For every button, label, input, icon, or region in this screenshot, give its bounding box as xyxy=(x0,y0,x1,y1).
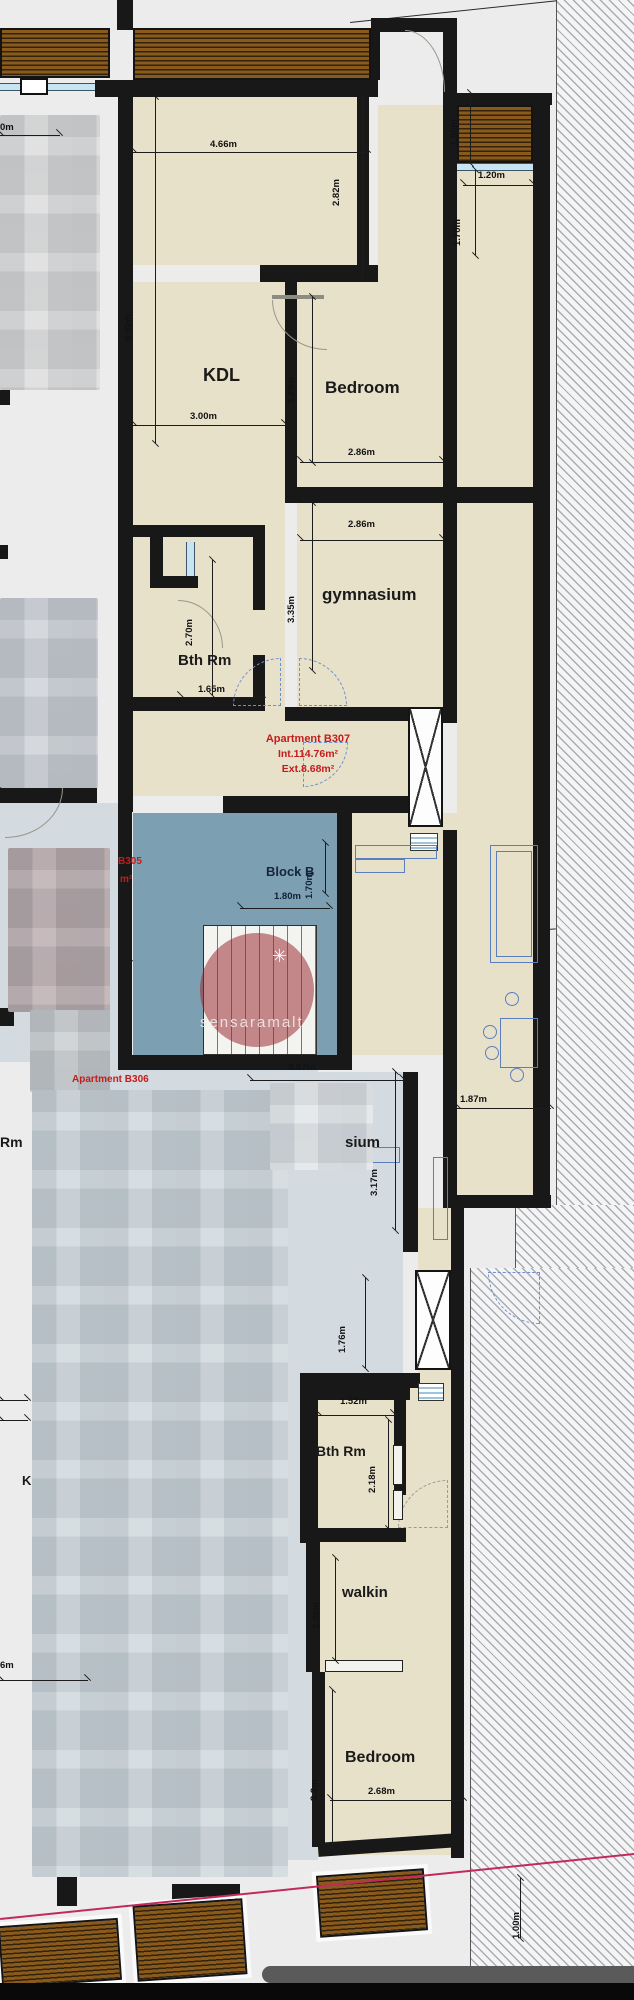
watermark-text: sensaramalta xyxy=(196,1014,318,1031)
neighbour-hatch-upper xyxy=(556,0,634,1268)
dim-line xyxy=(133,152,368,153)
dim-label: 1.00m xyxy=(511,1912,522,1939)
counter xyxy=(355,859,405,873)
dim-line xyxy=(240,908,330,909)
room-label-fragment-rm: Rm xyxy=(0,1134,23,1150)
dim-line xyxy=(335,1558,336,1660)
wall xyxy=(118,95,133,812)
wall xyxy=(443,830,457,1208)
balcony-deck-top-main xyxy=(133,28,371,80)
wall xyxy=(443,105,457,723)
neighbour-hatch-step xyxy=(515,1205,634,1268)
window-bath-nook xyxy=(186,542,195,578)
chair xyxy=(510,1068,524,1082)
dim-line xyxy=(457,1108,551,1109)
dim-line xyxy=(388,1420,389,1528)
blurred-region xyxy=(32,1090,288,1877)
dim-label: 3.35m xyxy=(286,596,297,623)
wall xyxy=(300,1388,318,1543)
apartment-b307-internal-area: Int.114.76m² xyxy=(228,748,388,760)
wall xyxy=(357,97,369,265)
dim-line xyxy=(365,1278,366,1368)
dim-label: 3.17m xyxy=(369,1169,380,1196)
dim-label: 3.00m xyxy=(190,411,217,422)
dim-label: 3.29m xyxy=(286,377,297,404)
counter xyxy=(355,845,437,859)
dim-line xyxy=(0,135,60,136)
bath-fixture xyxy=(393,1490,403,1520)
dim-line xyxy=(0,1680,88,1681)
apartment-b307-annotation: Apartment B307 Int.114.76m² Ext.8.68m² xyxy=(228,733,388,775)
wall xyxy=(451,1195,551,1208)
dim-line xyxy=(133,425,285,426)
wall xyxy=(95,80,378,97)
wall xyxy=(133,525,265,537)
dim-label: 2.68m xyxy=(368,1786,395,1797)
dim-label: 1.87m xyxy=(460,1094,487,1105)
dim-line xyxy=(300,540,443,541)
blurred-region xyxy=(0,115,100,390)
wall xyxy=(451,1195,464,1858)
dim-label: 4.66m xyxy=(210,139,237,150)
dim-line xyxy=(312,297,313,462)
balcony-deck-bottom-mid xyxy=(132,1898,247,1981)
dim-label: 6.92m xyxy=(123,314,134,341)
dim-label: 1.70m xyxy=(452,219,463,246)
dim-line xyxy=(332,1690,333,1848)
dim-label: 1.65m xyxy=(198,684,225,695)
wall xyxy=(118,1055,352,1070)
dim-label: 3.07m xyxy=(288,1062,315,1073)
dim-line xyxy=(395,1072,396,1230)
door-arc-bedroom-entry xyxy=(405,30,445,92)
dim-line xyxy=(362,97,363,277)
deck-support xyxy=(57,1876,77,1906)
chair xyxy=(505,992,519,1006)
room-label-bath-top: Bth Rm xyxy=(178,652,231,669)
dim-label: 2.86m xyxy=(348,447,375,458)
wall xyxy=(403,1072,418,1252)
dim-label: 2.86m xyxy=(348,519,375,530)
dim-label: 1.00m xyxy=(449,119,460,146)
dim-line xyxy=(0,1400,28,1401)
room-label-walkin: walkin xyxy=(342,1584,388,1601)
dim-line xyxy=(155,97,156,443)
apartment-b307-external-area: Ext.8.68m² xyxy=(228,763,388,775)
wall xyxy=(0,545,8,559)
balcony-deck-bottom-left xyxy=(0,1918,122,1988)
dim-label: 2.82m xyxy=(331,179,342,206)
balcony-deck-top-left xyxy=(0,28,110,78)
chair xyxy=(483,1025,497,1039)
wall xyxy=(223,796,423,813)
wall xyxy=(337,812,352,1062)
lift-shaft-lower xyxy=(415,1270,451,1370)
dim-line xyxy=(330,1800,464,1801)
dim-line xyxy=(0,1420,28,1421)
chair xyxy=(485,1046,499,1060)
dim-line xyxy=(300,462,443,463)
video-scrubber[interactable] xyxy=(262,1966,634,1983)
dim-label: 1.80m xyxy=(274,891,301,902)
dim-line xyxy=(250,1080,403,1081)
dim-label: 6m xyxy=(0,1660,14,1671)
balcony-deck-top-right xyxy=(457,105,533,163)
apartment-b305-unit-fragment: m² xyxy=(120,874,132,885)
floor-plan: ✳ sensaramalta 4.66m 1.00m 1.20m 2.82m 1… xyxy=(0,0,634,2000)
room-label-bedroom-top: Bedroom xyxy=(325,378,400,398)
blurred-region xyxy=(8,848,110,1012)
dim-label: 2.70m xyxy=(184,619,195,646)
wall xyxy=(253,530,265,610)
dim-line xyxy=(180,697,263,698)
dim-label: 1.76m xyxy=(337,1326,348,1353)
wall xyxy=(297,487,550,503)
dim-line xyxy=(325,843,326,893)
room-label-gym-lower-fragment: sium xyxy=(345,1134,380,1151)
wall xyxy=(300,1373,420,1388)
dim-line xyxy=(463,185,533,186)
shelf-unit-inner xyxy=(496,851,532,957)
kdl-room xyxy=(133,97,357,265)
room-label-kdl: KDL xyxy=(203,365,240,386)
dim-label: 0m xyxy=(0,122,14,133)
door-leaf-bedroom-top xyxy=(272,295,324,299)
wall xyxy=(0,390,10,405)
wall xyxy=(312,1672,325,1847)
room-label-block-b: Block B xyxy=(266,864,314,879)
balcony-deck-bottom-right xyxy=(316,1868,428,1937)
bottom-bar xyxy=(0,1983,634,2000)
blurred-region xyxy=(270,1083,373,1170)
room-label-fragment-k: K xyxy=(22,1473,31,1488)
neighbour-hatch-lower xyxy=(470,1268,634,1985)
window-box xyxy=(20,78,48,95)
watermark-star-icon: ✳ xyxy=(272,946,289,967)
wall xyxy=(443,18,457,103)
dim-line xyxy=(212,560,213,695)
wall xyxy=(118,812,132,1062)
dim-label: 1.52m xyxy=(340,1396,367,1407)
dim-label: 2.18m xyxy=(367,1466,378,1493)
room-label-bedroom-bottom: Bedroom xyxy=(345,1749,415,1767)
apartment-b307-title: Apartment B307 xyxy=(228,733,388,745)
wall xyxy=(285,707,410,721)
apartment-b306-title: Apartment B306 xyxy=(72,1074,149,1085)
dim-label: 1.20m xyxy=(478,170,505,181)
desk xyxy=(500,1018,538,1068)
dim-line xyxy=(470,93,471,163)
dim-line xyxy=(475,170,476,255)
lift-shaft-upper xyxy=(408,707,443,827)
wall xyxy=(260,265,378,282)
dim-line xyxy=(318,1415,394,1416)
room-label-bath-lower: Bth Rm xyxy=(316,1443,366,1459)
wardrobe xyxy=(433,1157,448,1240)
dim-label: 2.00m xyxy=(311,1602,322,1629)
bath-fixture xyxy=(393,1445,403,1485)
wall xyxy=(371,18,380,80)
vent-lower xyxy=(418,1383,444,1401)
dim-line xyxy=(312,503,313,670)
blurred-region xyxy=(0,598,98,788)
bedroom-top-room xyxy=(378,105,443,283)
room-label-gymnasium: gymnasium xyxy=(322,585,416,605)
wall xyxy=(150,576,198,588)
apartment-b305-fragment: B305 xyxy=(118,856,142,867)
dim-label: 3.2m xyxy=(309,1779,320,1801)
wall xyxy=(117,0,133,30)
